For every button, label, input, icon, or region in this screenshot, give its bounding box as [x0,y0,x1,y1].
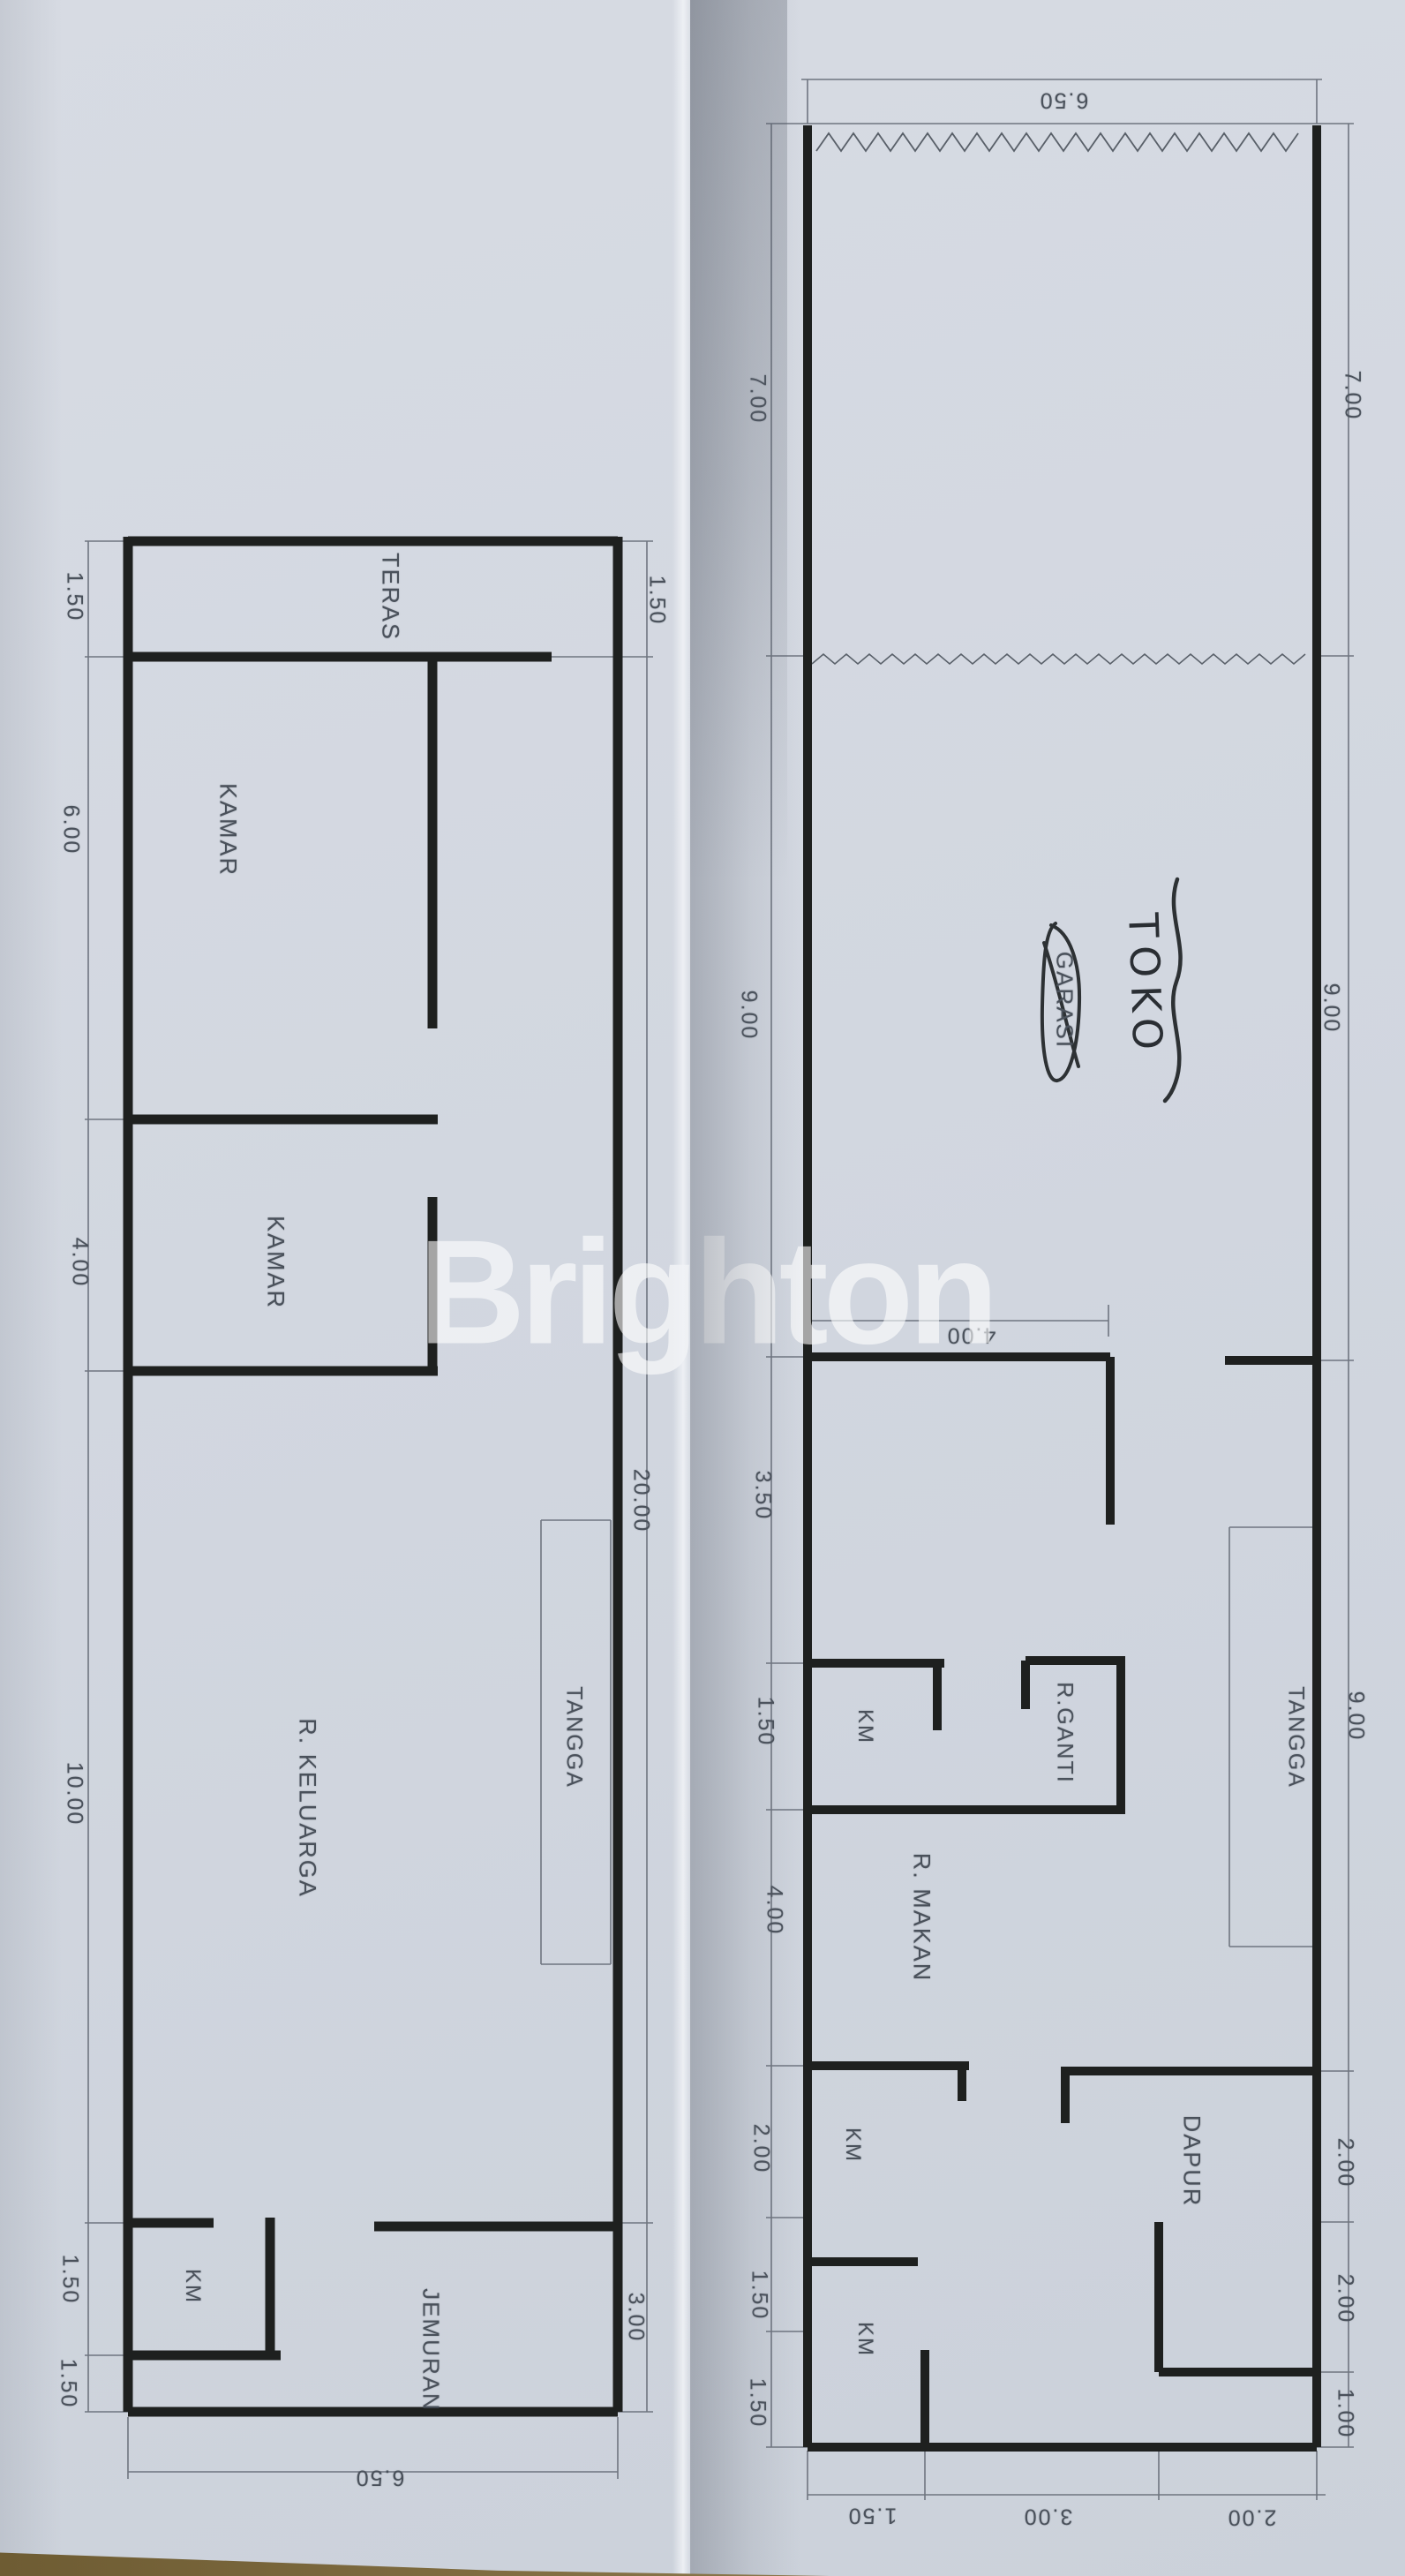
room-label: R. MAKAN [908,1853,935,1983]
dim-label: 6.50 [355,2465,405,2490]
room-label: KM [853,1709,877,1744]
dim-label: 6.50 [1039,87,1089,113]
dim-label: 1.50 [847,2503,898,2528]
room-label: TANGGA [1283,1686,1309,1789]
dim-label: 10.00 [62,1762,87,1827]
room-label: GARASI [1051,952,1078,1049]
room-label: R. KELUARGA [294,1718,321,1898]
room-label: TOKO [1119,912,1172,1058]
paper-crease-ridge [672,0,692,2576]
room-label: JEMURAN [417,2288,445,2412]
room-label: KAMAR [262,1216,289,1309]
dim-label: 2.00 [1227,2504,1277,2530]
room-label: KM [840,2128,865,2163]
floorplan-photo: TERASKAMARKAMARR. KELUARGATANGGAKMJEMURA… [0,0,1405,2576]
dim-label: 3.00 [1023,2504,1073,2529]
room-label: TERAS [377,553,404,641]
room-label: TANGGA [561,1686,587,1789]
dim-label: 20.00 [628,1469,654,1533]
dim-label: 1.50 [62,572,87,622]
room-label: KM [180,2269,205,2304]
dim-label: 7.00 [1340,371,1365,421]
room-label: R.GANTI [1052,1682,1078,1783]
dim-label: 2.00 [1333,2274,1358,2324]
paper-left-edge-shade [0,0,62,2576]
room-label: KAMAR [214,783,242,877]
paper-crease-shadow-top [690,0,787,883]
dim-label: 3.00 [623,2293,649,2343]
dim-label: 1.00 [1333,2389,1358,2439]
dim-label: 1.50 [644,576,670,626]
dim-label: 9.00 [1343,1691,1369,1742]
dim-label: 9.00 [1319,983,1344,1034]
dim-label: 4.00 [67,1238,93,1288]
dim-label: 2.00 [1333,2138,1358,2188]
room-label: DAPUR [1178,2115,1206,2208]
room-label: KM [853,2322,877,2357]
